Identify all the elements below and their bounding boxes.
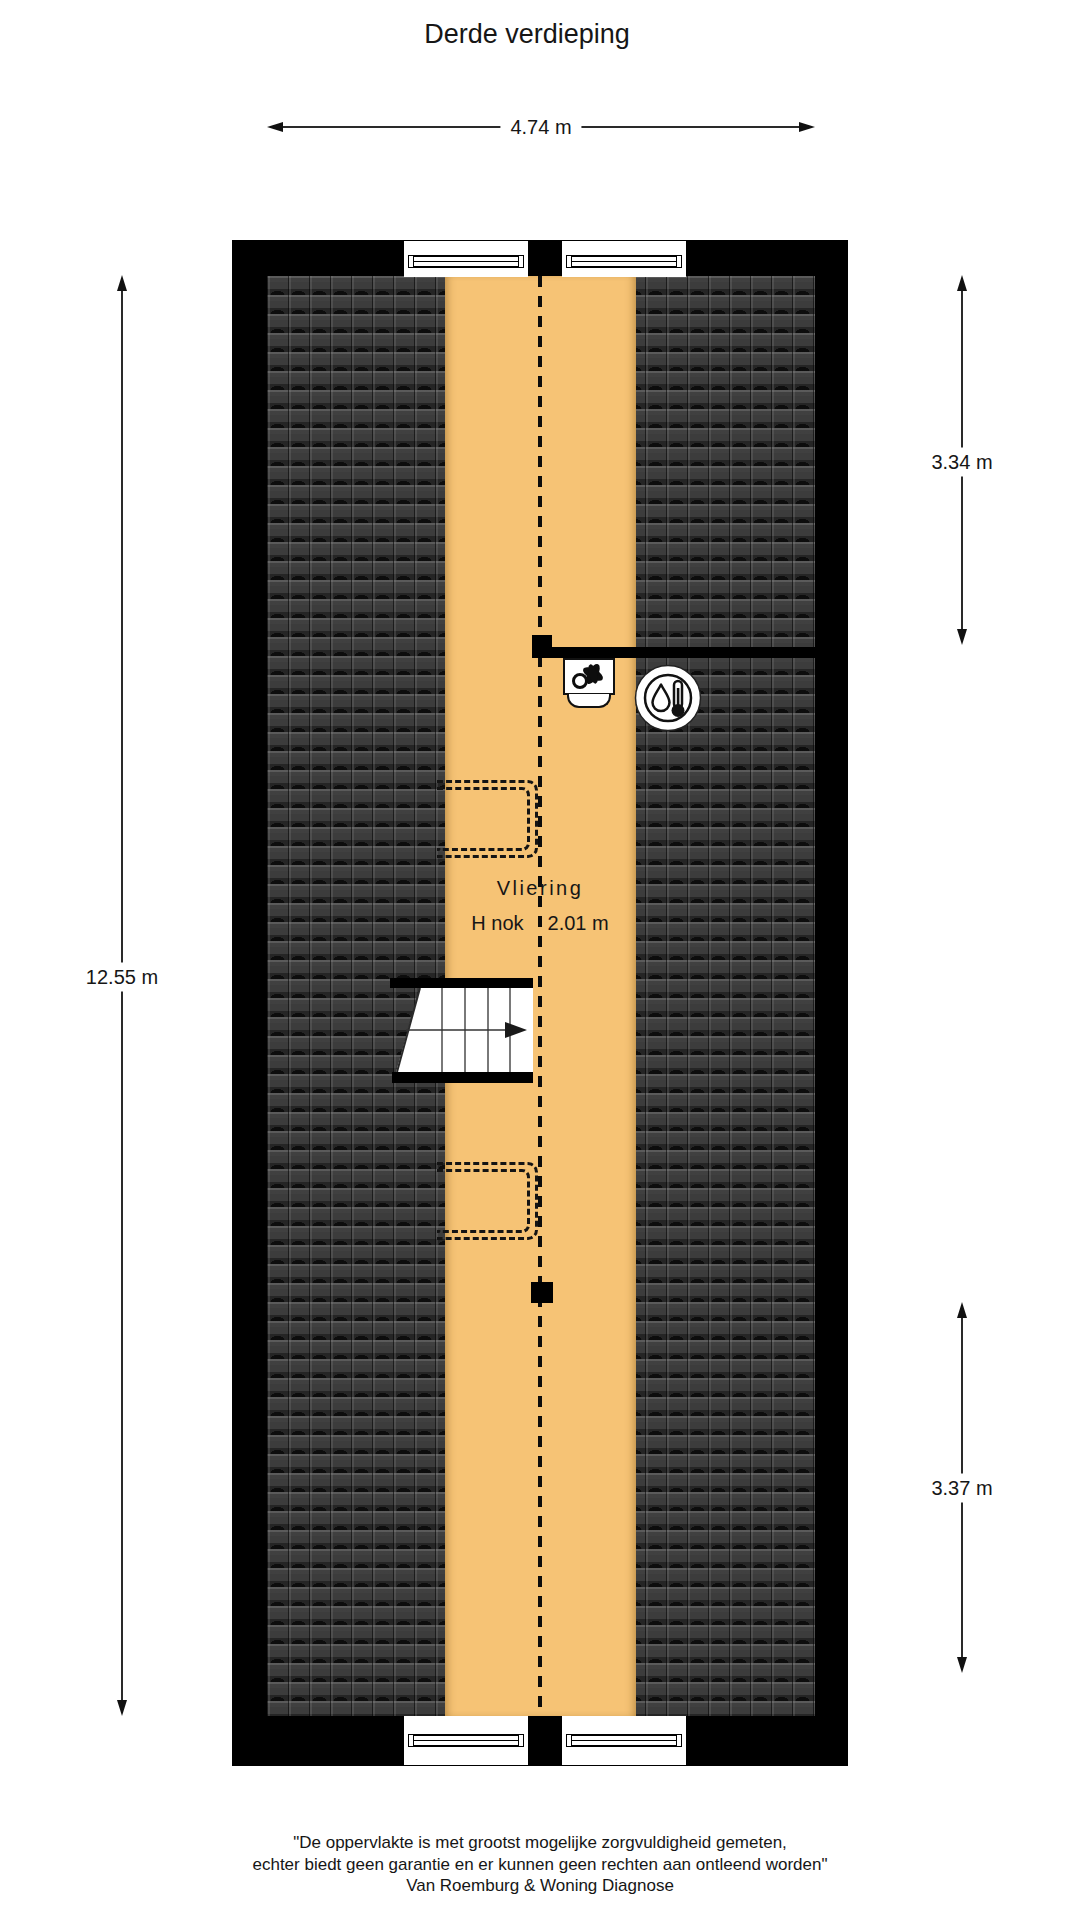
dimension-label: 3.34 m <box>921 448 1002 477</box>
ridge-marker-square <box>531 1282 553 1303</box>
skylight-outline-upper <box>437 780 538 858</box>
roof-tiles-area: Vliering H nok 2.01 m <box>267 276 815 1716</box>
skylight-outline-inner <box>437 1169 530 1233</box>
arrow-right-icon <box>799 122 815 132</box>
interior-wall <box>550 647 815 658</box>
window-glazing <box>409 255 523 268</box>
disclaimer: "De oppervlakte is met grootst mogelijke… <box>0 1832 1080 1897</box>
window-glazing <box>567 1734 681 1747</box>
ventilation-unit-box <box>563 658 615 695</box>
page-title: Derde verdieping <box>0 19 1054 50</box>
ridge-dashed-line <box>538 276 542 1716</box>
dimension-label: 4.74 m <box>500 113 581 142</box>
arrow-up-icon <box>957 275 967 291</box>
disclaimer-line-2: echter biedt geen garantie en er kunnen … <box>0 1854 1080 1876</box>
dimension-label: 12.55 m <box>76 963 168 992</box>
dimension-left-height: 12.55 m <box>113 275 131 1716</box>
boiler-badge <box>634 664 702 732</box>
skylight-outline-inner <box>437 787 530 851</box>
disclaimer-line-3: Van Roemburg & Woning Diagnose <box>0 1875 1080 1897</box>
staircase-drawing <box>390 978 533 1083</box>
disclaimer-line-1: "De oppervlakte is met grootst mogelijke… <box>0 1832 1080 1854</box>
floorplan-page: Derde verdieping 4.74 m 12.55 m 3.34 m 3… <box>0 0 1080 1920</box>
room-label: Vliering <box>267 877 813 900</box>
arrow-left-icon <box>267 122 283 132</box>
arrow-down-icon <box>957 1657 967 1673</box>
window-bottom-right <box>562 1716 686 1765</box>
dimension-right-upper: 3.34 m <box>953 275 971 645</box>
window-glazing <box>409 1734 523 1747</box>
dimension-label: 3.37 m <box>921 1474 1002 1503</box>
window-glazing <box>567 255 681 268</box>
fan-icon <box>565 660 613 693</box>
ventilation-unit-flap <box>567 694 611 708</box>
skylight-outline-lower <box>437 1162 538 1240</box>
arrow-up-icon <box>957 1302 967 1318</box>
ridge-height-annotation: H nok 2.01 m <box>267 912 813 935</box>
floorplan: Vliering H nok 2.01 m <box>232 240 848 1766</box>
arrow-up-icon <box>117 275 127 291</box>
dimension-line <box>121 285 123 1706</box>
arrow-down-icon <box>117 1700 127 1716</box>
ridge-height-label: H nok <box>471 912 523 935</box>
arrow-down-icon <box>957 629 967 645</box>
window-top-right <box>562 241 686 277</box>
interior-wall-stub <box>532 635 552 658</box>
ridge-height-value: 2.01 m <box>548 912 609 935</box>
staircase <box>390 978 533 1083</box>
dimension-right-lower: 3.37 m <box>953 1302 971 1673</box>
window-bottom-left <box>404 1716 528 1765</box>
thermometer-drop-icon <box>634 664 702 732</box>
window-top-left <box>404 241 528 277</box>
dimension-top-width: 4.74 m <box>267 119 815 135</box>
